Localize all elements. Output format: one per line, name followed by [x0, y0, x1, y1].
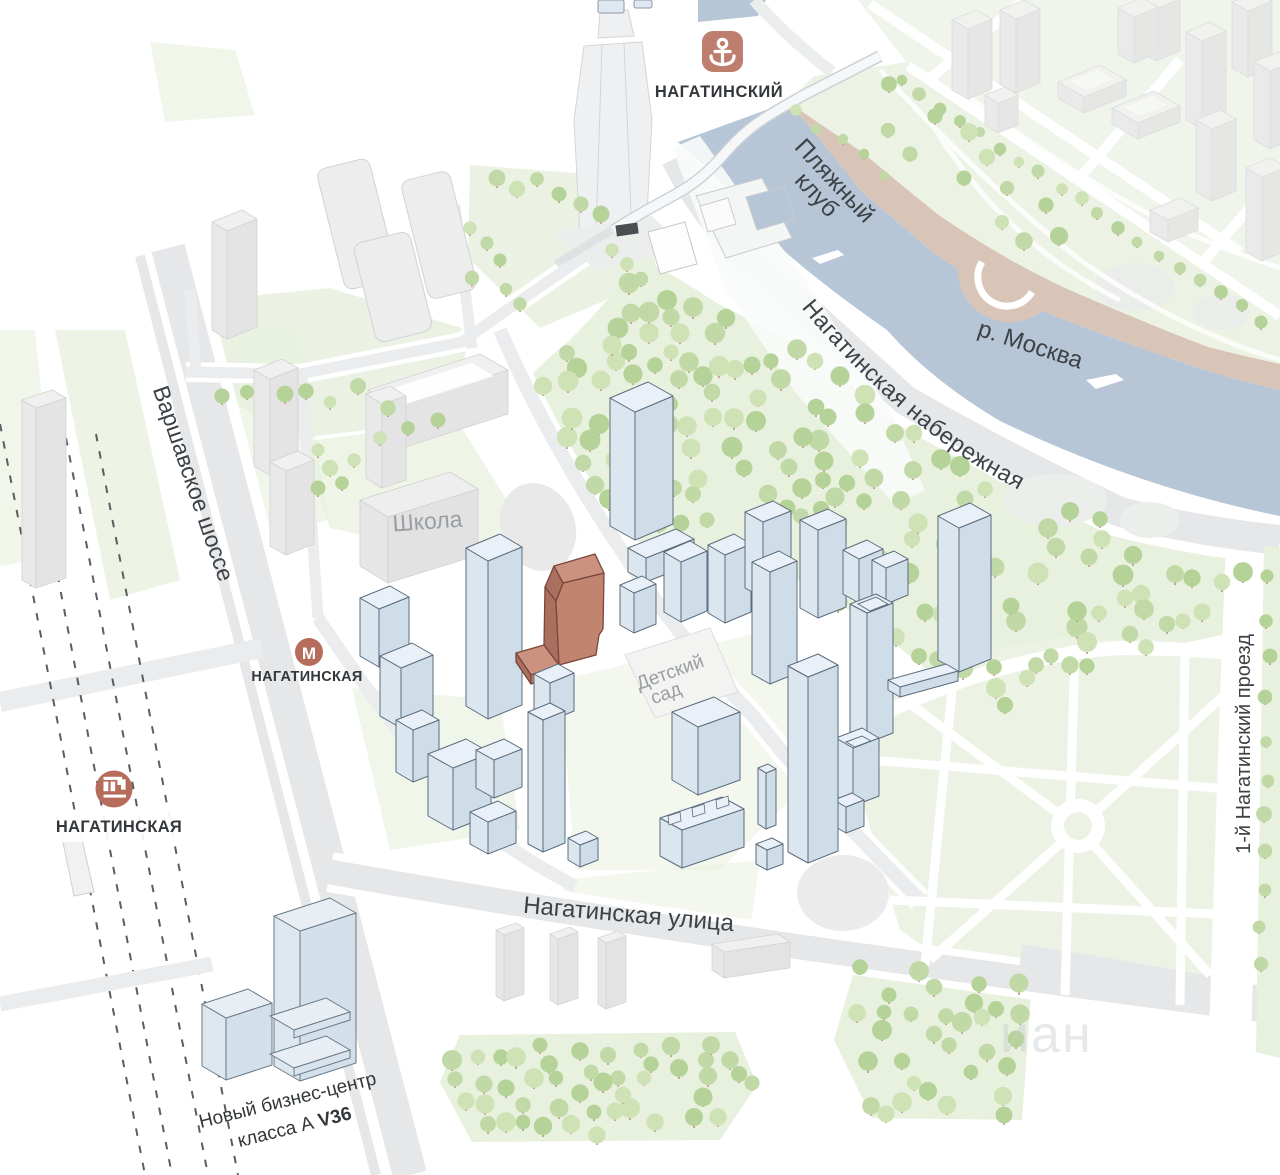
svg-text:иан: иан	[1000, 1006, 1093, 1064]
svg-text:Школа: Школа	[392, 506, 464, 537]
svg-text:М: М	[302, 644, 316, 663]
svg-text:НАГАТИНСКАЯ: НАГАТИНСКАЯ	[56, 818, 182, 836]
svg-text:НАГАТИНСКИЙ: НАГАТИНСКИЙ	[655, 82, 783, 101]
svg-text:1-й Нагатинский проезд: 1-й Нагатинский проезд	[1233, 634, 1255, 854]
svg-text:НАГАТИНСКАЯ: НАГАТИНСКАЯ	[251, 669, 362, 685]
